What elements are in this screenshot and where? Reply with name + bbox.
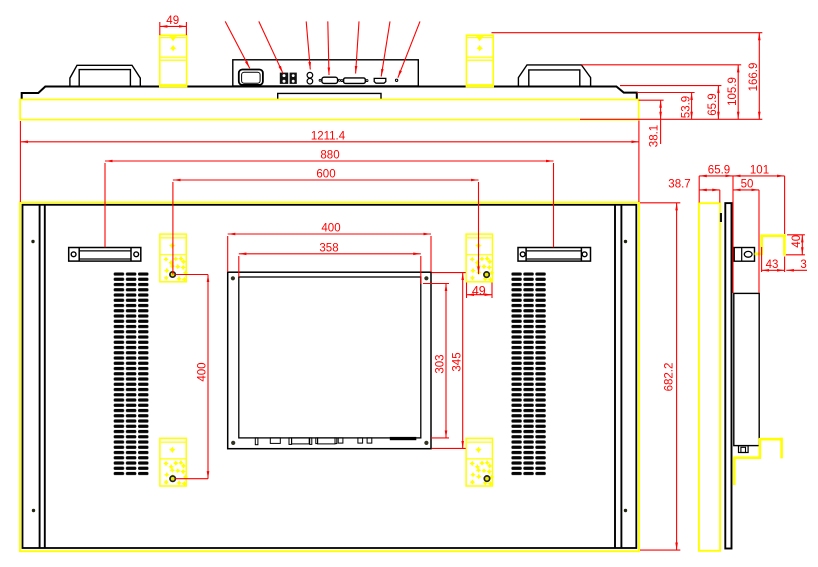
svg-text:303: 303 — [435, 354, 447, 373]
svg-text:53.9: 53.9 — [680, 96, 692, 118]
svg-text:43: 43 — [766, 259, 779, 271]
svg-text:166.9: 166.9 — [748, 63, 760, 92]
svg-text:400: 400 — [321, 223, 340, 235]
svg-text:101: 101 — [750, 164, 769, 176]
svg-text:400: 400 — [197, 362, 209, 381]
svg-text:345: 345 — [451, 352, 463, 371]
svg-text:65.9: 65.9 — [707, 93, 719, 115]
svg-text:600: 600 — [316, 169, 335, 181]
svg-text:49: 49 — [472, 284, 486, 298]
svg-text:38.1: 38.1 — [649, 125, 661, 147]
svg-text:49: 49 — [166, 15, 179, 27]
svg-text:682.2: 682.2 — [664, 363, 676, 392]
svg-text:38.7: 38.7 — [668, 178, 690, 190]
svg-text:3: 3 — [800, 259, 806, 271]
svg-text:50: 50 — [741, 178, 754, 190]
svg-text:105.9: 105.9 — [727, 77, 739, 106]
svg-text:65.9: 65.9 — [708, 164, 730, 176]
svg-text:1211.4: 1211.4 — [311, 131, 346, 143]
svg-text:358: 358 — [319, 242, 338, 254]
svg-text:880: 880 — [320, 150, 339, 162]
svg-text:40: 40 — [791, 235, 803, 248]
